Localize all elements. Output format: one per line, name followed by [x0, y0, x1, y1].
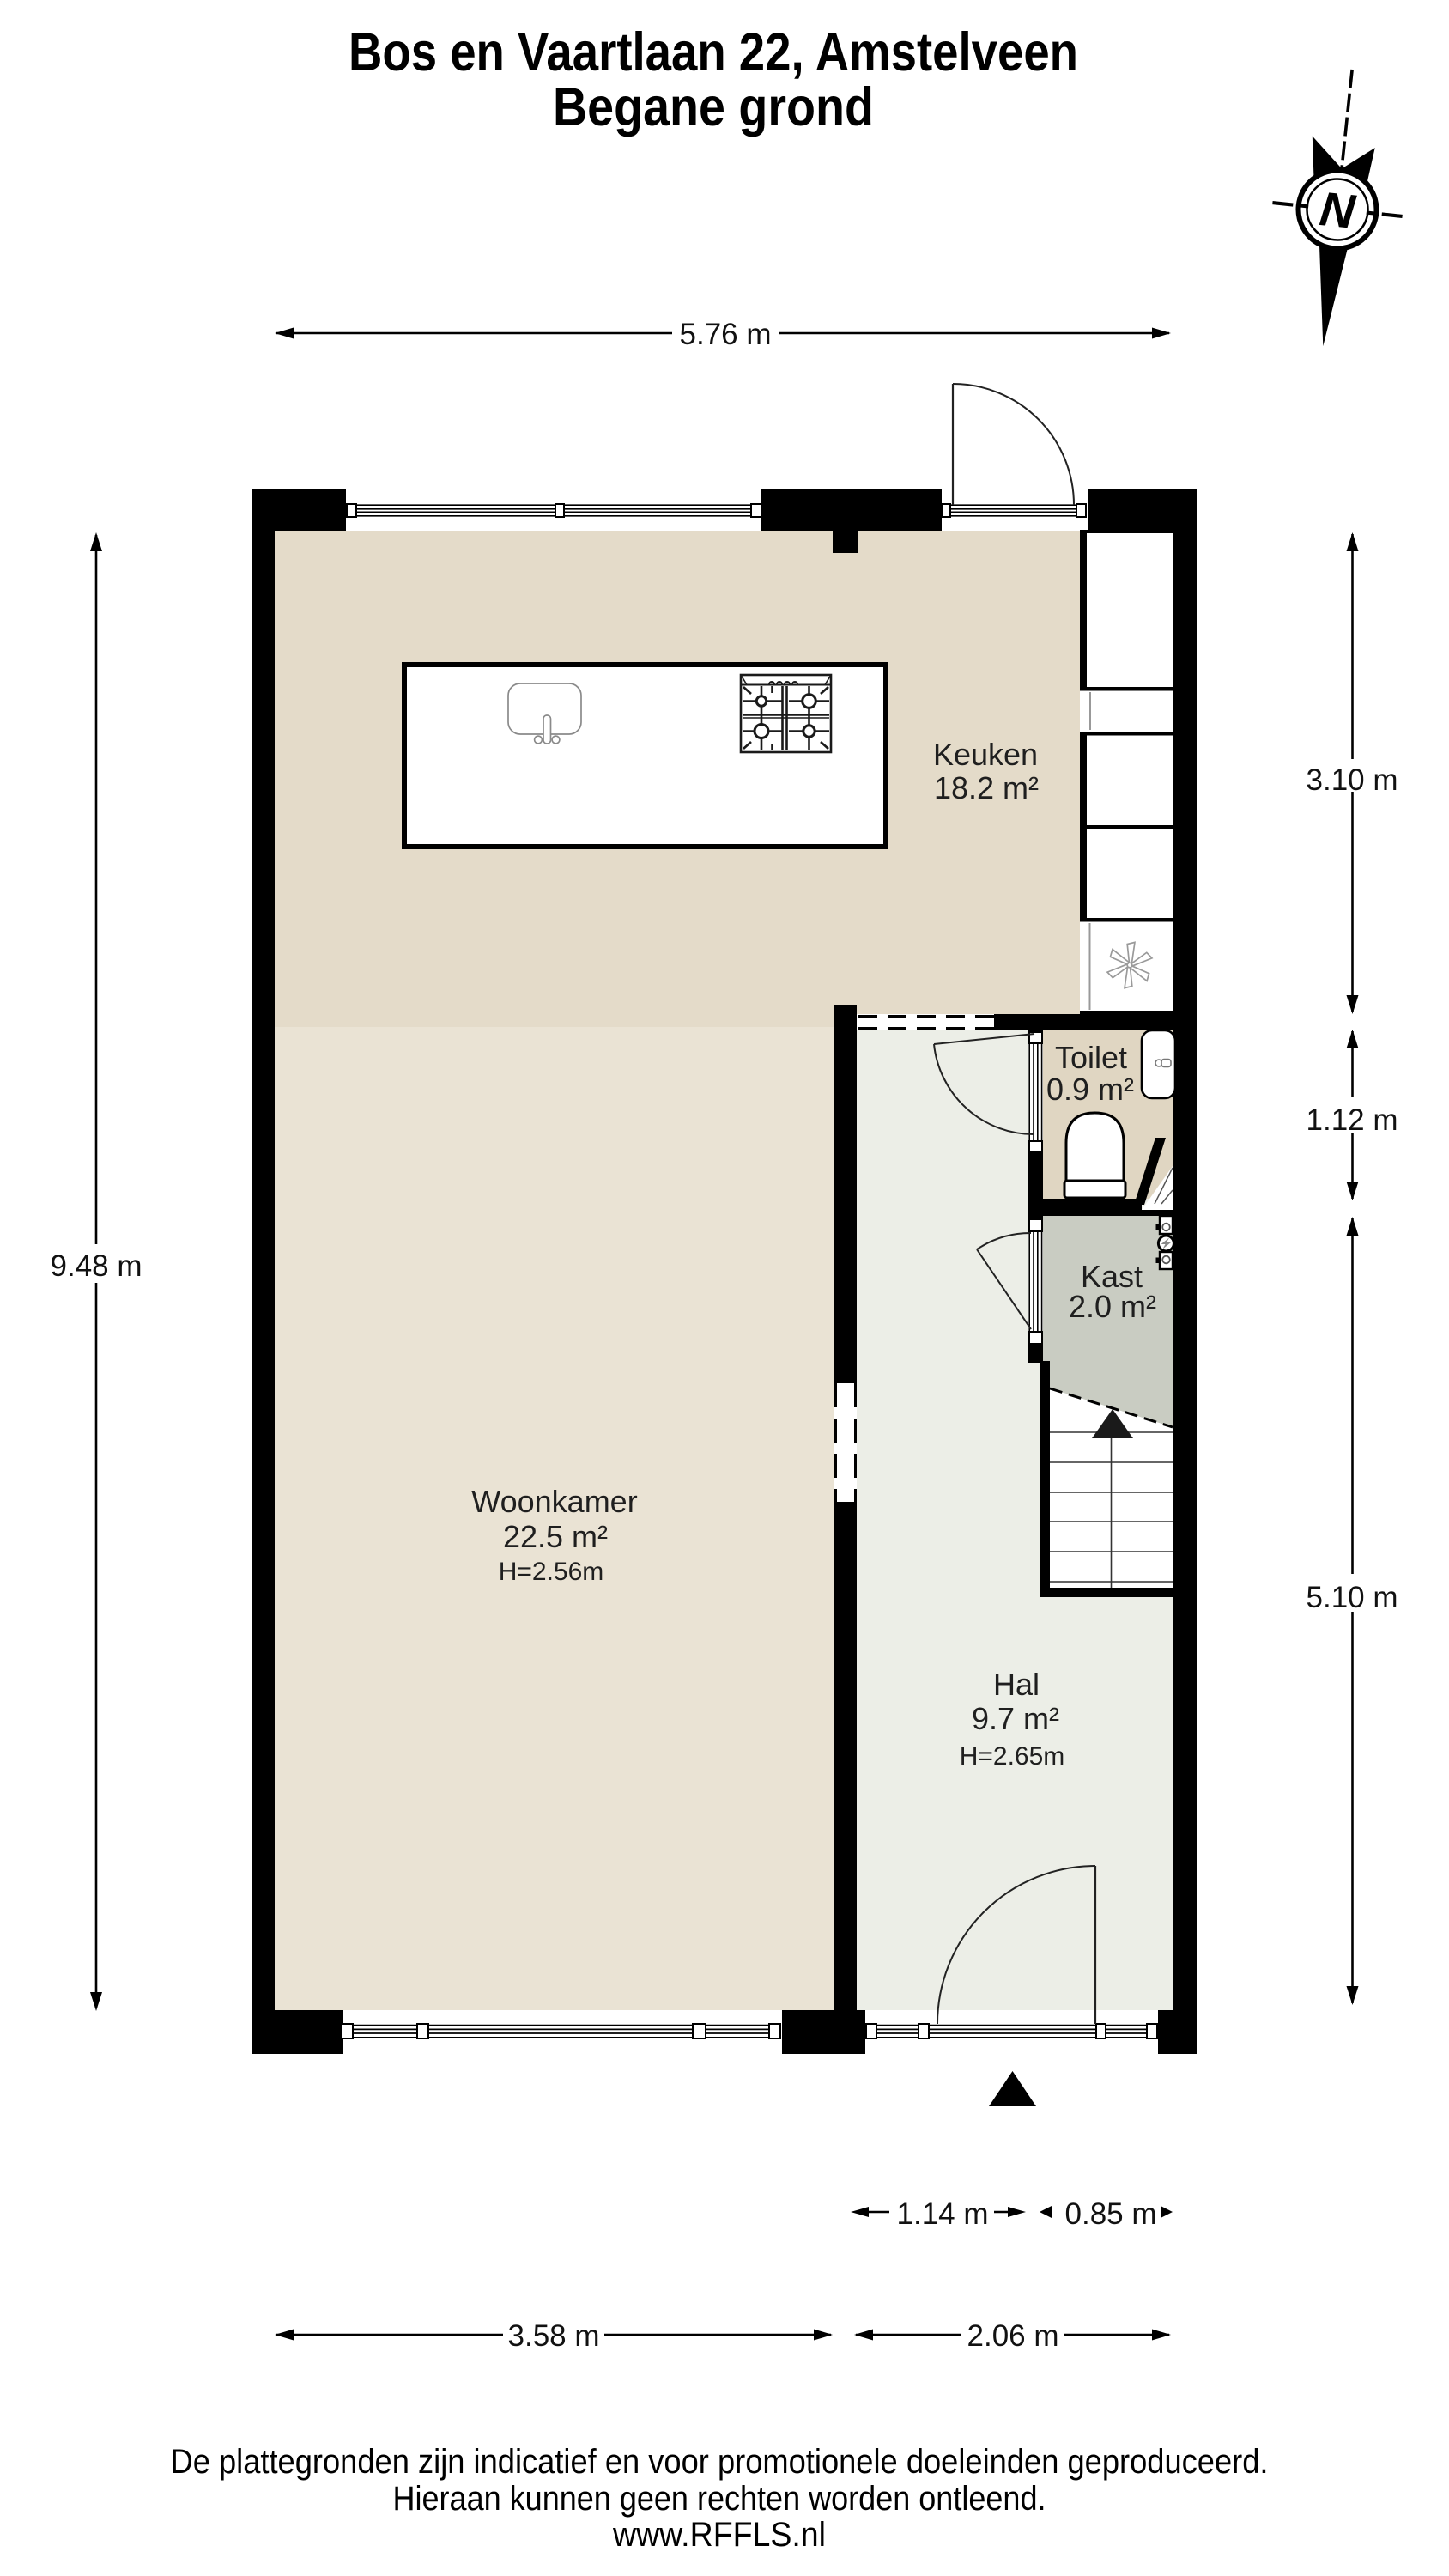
svg-text:Keuken: Keuken — [933, 737, 1038, 772]
svg-text:H=2.65m: H=2.65m — [960, 1742, 1065, 1771]
svg-text:1.14 m: 1.14 m — [897, 2197, 989, 2231]
svg-text:Bos en Vaartlaan 22, Amstelvee: Bos en Vaartlaan 22, Amstelveen — [349, 22, 1078, 82]
svg-text:9.7 m²: 9.7 m² — [972, 1701, 1059, 1736]
svg-text:3.58 m: 3.58 m — [508, 2319, 600, 2353]
svg-text:5.76 m: 5.76 m — [680, 318, 772, 351]
svg-text:22.5 m²: 22.5 m² — [503, 1519, 608, 1554]
svg-text:Woonkamer: Woonkamer — [471, 1484, 637, 1519]
svg-text:1.12 m: 1.12 m — [1307, 1103, 1398, 1137]
svg-text:Hal: Hal — [993, 1667, 1040, 1702]
svg-text:18.2 m²: 18.2 m² — [934, 770, 1039, 805]
svg-text:Hieraan kunnen geen rechten wo: Hieraan kunnen geen rechten worden ontle… — [393, 2480, 1046, 2518]
svg-text:2.0 m²: 2.0 m² — [1069, 1289, 1156, 1324]
svg-text:9.48 m: 9.48 m — [51, 1249, 142, 1283]
svg-text:3.10 m: 3.10 m — [1307, 763, 1398, 797]
svg-text:N: N — [1318, 181, 1359, 239]
svg-text:5.10 m: 5.10 m — [1307, 1581, 1398, 1614]
svg-text:Toilet: Toilet — [1055, 1040, 1127, 1075]
svg-text:De plattegronden zijn indicati: De plattegronden zijn indicatief en voor… — [171, 2443, 1269, 2481]
svg-text:2.06 m: 2.06 m — [967, 2319, 1059, 2353]
svg-text:www.RFFLS.nl: www.RFFLS.nl — [612, 2516, 826, 2554]
svg-text:0.9 m²: 0.9 m² — [1046, 1072, 1134, 1107]
svg-text:0.85 m: 0.85 m — [1065, 2197, 1157, 2231]
svg-text:Begane grond: Begane grond — [553, 77, 874, 137]
svg-text:H=2.56m: H=2.56m — [499, 1558, 604, 1586]
